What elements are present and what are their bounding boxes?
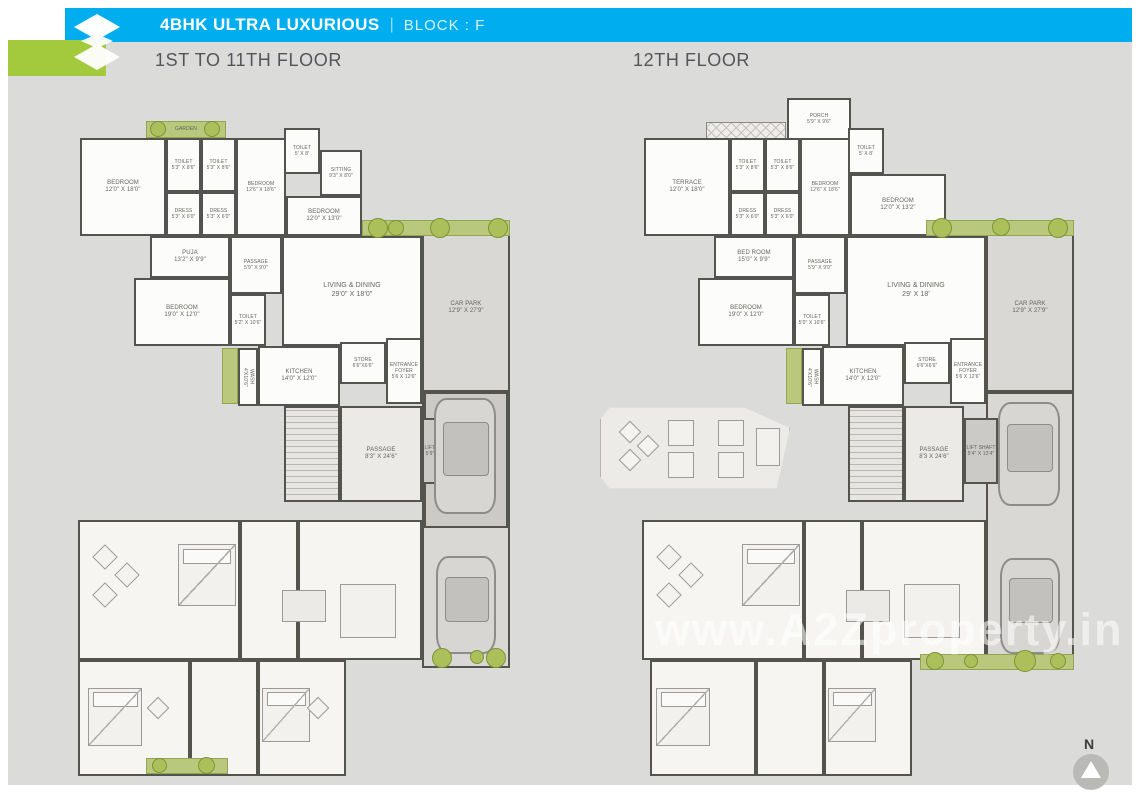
header-separator: | (390, 16, 394, 34)
layer-shape-bottom (74, 44, 120, 70)
entrance-foyer: ENTRANCE FOYER5'6 X 12'6" (950, 338, 986, 404)
bedroom: BEDROOM12'6" X 18'6" (800, 138, 850, 236)
bedroom: BEDROOM19'0" X 12'0" (134, 278, 230, 346)
puja: PUJA13'2" X 9'9" (150, 236, 230, 278)
sitting: SITTING9'3" X 8'0" (320, 150, 362, 196)
floor-title-right: 12TH FLOOR (633, 50, 750, 71)
furn (668, 420, 694, 446)
bed (656, 688, 710, 746)
dot-icon (198, 757, 215, 774)
terrace: TERRACE12'0" X 18'0" (644, 138, 730, 236)
dress: DRESS5'3" X 6'0" (730, 192, 765, 236)
floor-title-left: 1ST TO 11TH FLOOR (155, 50, 342, 71)
entrance-foyer: ENTRANCE FOYER5'6 X 12'6" (386, 338, 422, 404)
dot-icon (150, 121, 166, 137)
lift-shaft: LIFT SHAFT5'4" X 13'4" (964, 418, 998, 484)
bed (828, 688, 876, 742)
toilet: TOILET5' X 8' (284, 128, 320, 174)
green (222, 348, 238, 404)
furn (756, 428, 780, 466)
dot-icon (992, 218, 1010, 236)
green (786, 348, 802, 404)
living-dining: LIVING & DINING29' X 18' (846, 236, 986, 346)
store: STORE6'6"X6'6" (904, 342, 950, 384)
layers-icon (70, 12, 124, 74)
bedroom: BEDROOM12'6" X 18'6" (236, 138, 286, 236)
compass-icon (1073, 754, 1109, 790)
passage: PASSAGE5'9" X 9'0" (230, 236, 282, 294)
passage: PASSAGE8'3 X 24'6" (904, 406, 964, 502)
car-icon (998, 402, 1060, 506)
living-dining: LIVING & DINING29'0" X 18'0" (282, 236, 422, 346)
car-park: CAR PARK12'9" X 27'9" (986, 224, 1074, 392)
page-title: 4BHK ULTRA LUXURIOUS (160, 15, 380, 35)
wash: WASH4'X10'6" (802, 348, 822, 406)
toilet: TOILET5' X 8' (848, 128, 884, 174)
passage: PASSAGE5'9" X 9'0" (794, 236, 846, 294)
stairs (848, 406, 904, 502)
car-icon (436, 556, 496, 654)
bed-room: BED ROOM15'0" X 9'9" (714, 236, 794, 278)
toilet: TOILET5'3" X 8'6" (201, 138, 236, 192)
dot-icon (932, 218, 952, 238)
bedroom: BEDROOM12'0" X 18'0" (80, 138, 166, 236)
furn (718, 420, 744, 446)
dress: DRESS5'3" X 6'0" (201, 192, 236, 236)
passage: PASSAGE8'3" X 24'6" (340, 406, 422, 502)
bed (178, 544, 236, 606)
toilet: TOILET5'3" X 8'6" (765, 138, 800, 192)
block-label: BLOCK : F (404, 17, 486, 34)
furn (718, 452, 744, 478)
dot-icon (204, 121, 220, 137)
dot-icon (486, 648, 506, 668)
wash: WASH4'X10'6" (238, 348, 258, 406)
dot-icon (430, 218, 450, 238)
kitchen: KITCHEN14'0" X 12'0" (258, 346, 340, 406)
table (282, 590, 326, 622)
furn (668, 452, 694, 478)
header-bar: 4BHK ULTRA LUXURIOUS | BLOCK : F (65, 8, 1132, 42)
dot-icon (470, 650, 484, 664)
dot-icon (488, 218, 508, 238)
toilet: TOILET5'3" X 8'6" (166, 138, 201, 192)
car-park: CAR PARK12'9" X 27'9" (422, 224, 510, 392)
toilet: TOILET5'2" X 10'6" (230, 294, 266, 346)
bed (262, 688, 310, 742)
soft (756, 660, 824, 776)
dot-icon (388, 220, 404, 236)
dot-icon (1048, 218, 1068, 238)
toilet: TOILET5'3" X 8'6" (730, 138, 765, 192)
dot-icon (368, 218, 388, 238)
stairs (284, 406, 340, 502)
furn (340, 584, 396, 638)
kitchen: KITCHEN14'0" X 12'0" (822, 346, 904, 406)
porch: PORCH5'9" X 9'6" (787, 98, 851, 140)
car-icon (434, 398, 496, 514)
store: STORE6'6"X6'6" (340, 342, 386, 384)
compass: N (1060, 736, 1124, 792)
bed (742, 544, 800, 606)
bed (88, 688, 142, 746)
dot-icon (152, 758, 167, 773)
dot-icon (432, 648, 452, 668)
dress: DRESS5'3" X 6'0" (765, 192, 800, 236)
bedroom: BEDROOM19'0" X 12'0" (698, 278, 794, 346)
dress: DRESS5'3" X 6'0" (166, 192, 201, 236)
compass-north-label: N (1084, 736, 1094, 752)
floor-plans-layer: CAR PARK12'9" X 27'9"PASSAGE8'3" X 24'6"… (0, 0, 1140, 794)
watermark: www.A2Zproperty.in (655, 604, 1133, 662)
bedroom: BEDROOM12'0" X 13'0" (286, 196, 362, 236)
toilet: TOILET5'0" X 10'6" (794, 294, 830, 346)
